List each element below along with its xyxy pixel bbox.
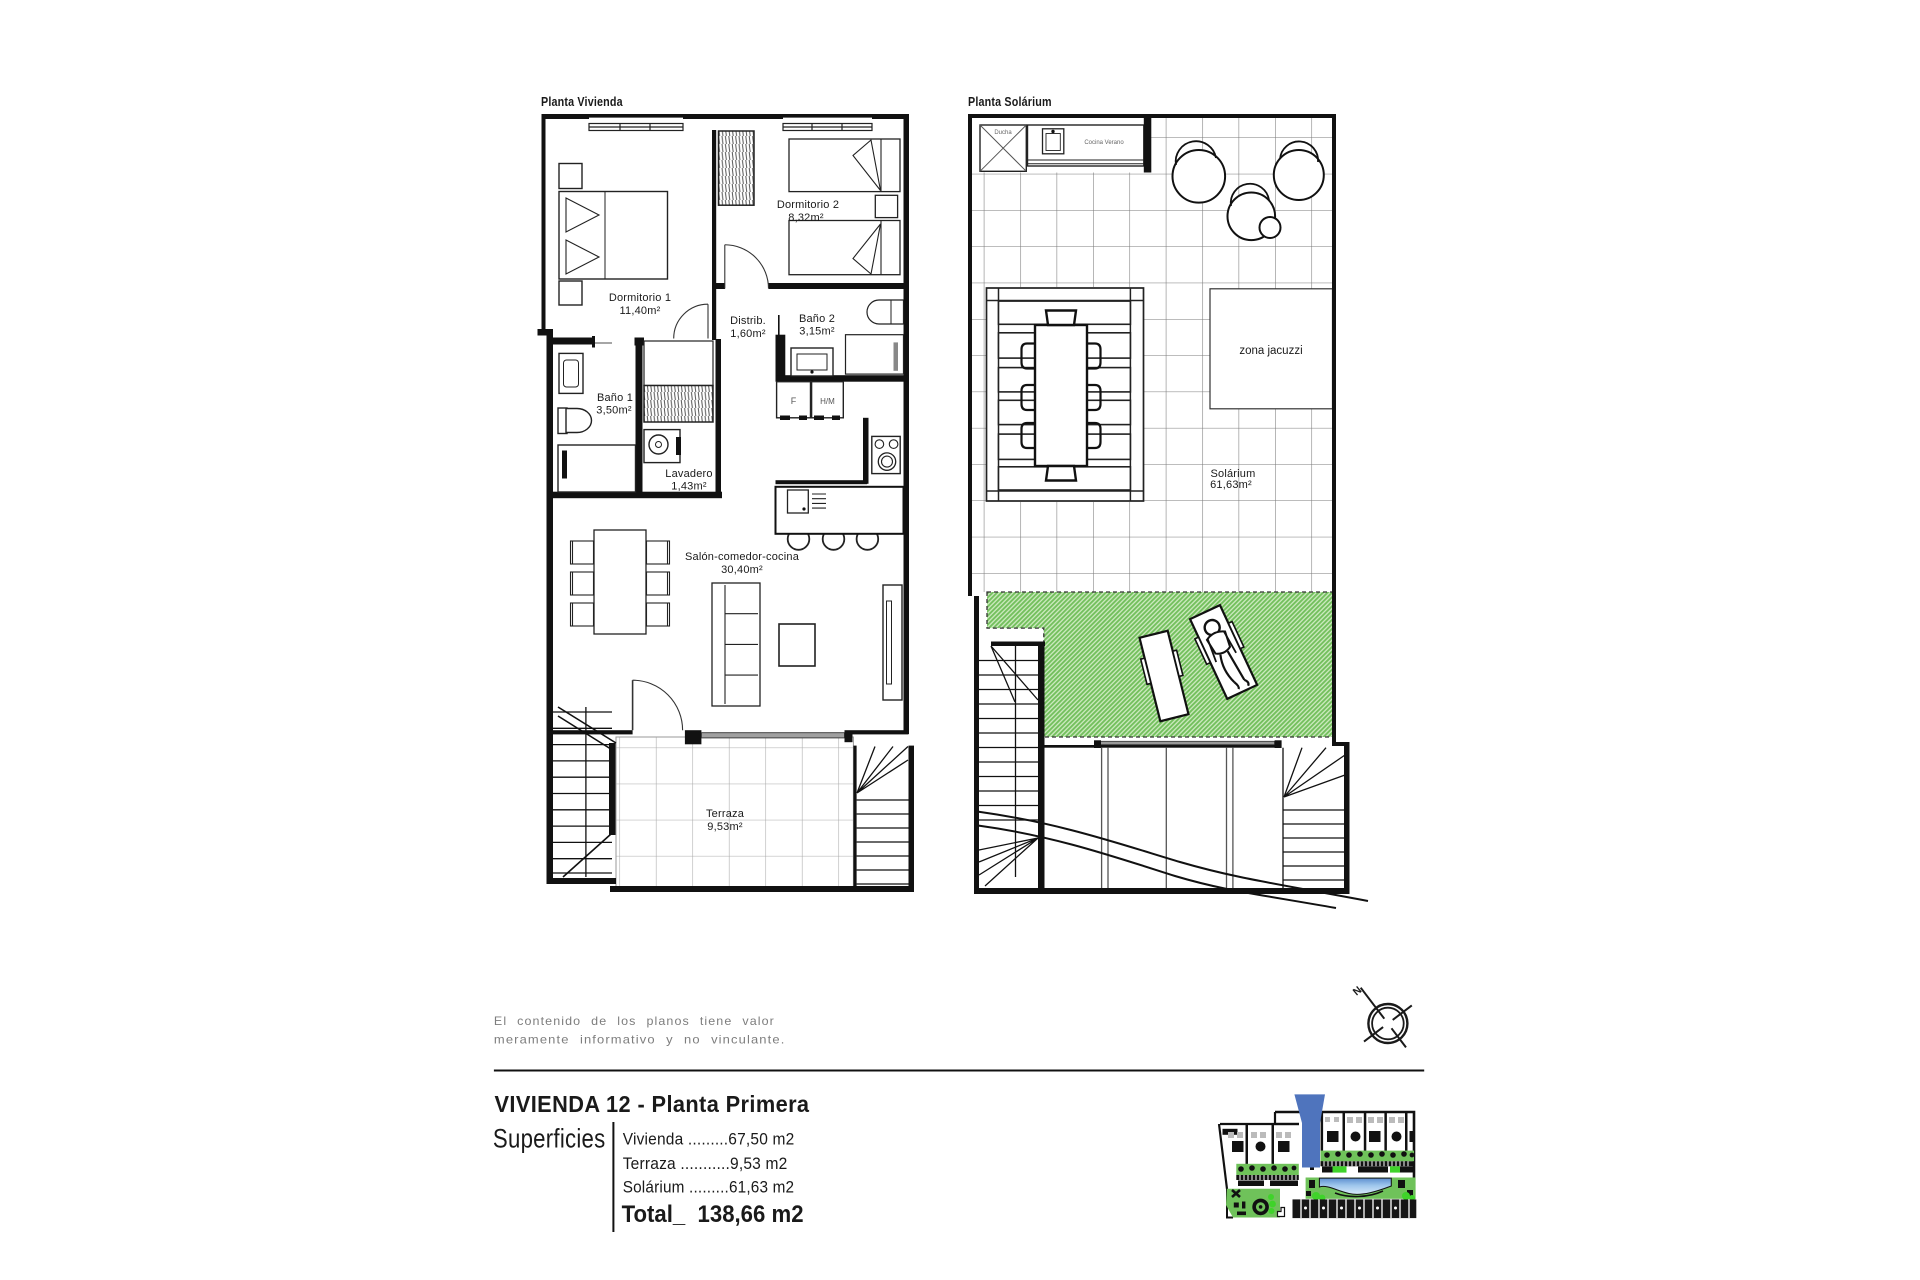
svg-text:Ducha: Ducha <box>994 130 1012 136</box>
svg-text:1,60m²: 1,60m² <box>730 328 766 340</box>
svg-text:30,40m²: 30,40m² <box>721 564 763 576</box>
svg-text:H/M: H/M <box>820 397 835 406</box>
svg-text:Solárium .........61,63 m2: Solárium .........61,63 m2 <box>623 1178 795 1197</box>
svg-text:3,50m²: 3,50m² <box>596 405 632 417</box>
svg-text:3,15m²: 3,15m² <box>799 326 835 338</box>
svg-text:Terraza ...........9,53 m2: Terraza ...........9,53 m2 <box>623 1154 788 1173</box>
svg-text:Dormitorio 1: Dormitorio 1 <box>609 292 671 304</box>
svg-text:Baño 2: Baño 2 <box>799 313 835 325</box>
svg-text:F: F <box>791 396 797 406</box>
svg-text:meramente informativo y no vin: meramente informativo y no vinculante. <box>494 1033 786 1046</box>
svg-text:El contenido de los planos tie: El contenido de los planos tiene valor <box>494 1014 775 1027</box>
svg-text:11,40m²: 11,40m² <box>620 305 661 317</box>
svg-text:Superficies: Superficies <box>493 1125 606 1154</box>
svg-text:Terraza: Terraza <box>706 808 745 820</box>
svg-text:VIVIENDA 12 - Planta Primera: VIVIENDA 12 - Planta Primera <box>495 1091 810 1117</box>
svg-text:Vivienda .........67,50 m2: Vivienda .........67,50 m2 <box>623 1130 795 1149</box>
svg-text:Lavadero: Lavadero <box>665 468 712 480</box>
svg-text:Distrib.: Distrib. <box>730 315 766 327</box>
svg-text:Cocina Verano: Cocina Verano <box>1084 140 1124 146</box>
svg-text:Planta Vivienda: Planta Vivienda <box>541 95 623 109</box>
svg-text:Total_ 138,66 m2: Total_ 138,66 m2 <box>622 1200 804 1227</box>
svg-text:1,43m²: 1,43m² <box>671 481 707 493</box>
svg-text:zona jacuzzi: zona jacuzzi <box>1239 345 1302 357</box>
svg-text:61,63m²: 61,63m² <box>1210 479 1252 491</box>
svg-text:9,53m²: 9,53m² <box>707 821 743 833</box>
svg-text:Planta Solárium: Planta Solárium <box>968 95 1052 109</box>
svg-text:Salón-comedor-cocina: Salón-comedor-cocina <box>685 551 800 563</box>
svg-text:Baño 1: Baño 1 <box>597 392 633 404</box>
svg-text:Dormitorio 2: Dormitorio 2 <box>777 199 839 211</box>
svg-text:8,32m²: 8,32m² <box>788 212 824 224</box>
